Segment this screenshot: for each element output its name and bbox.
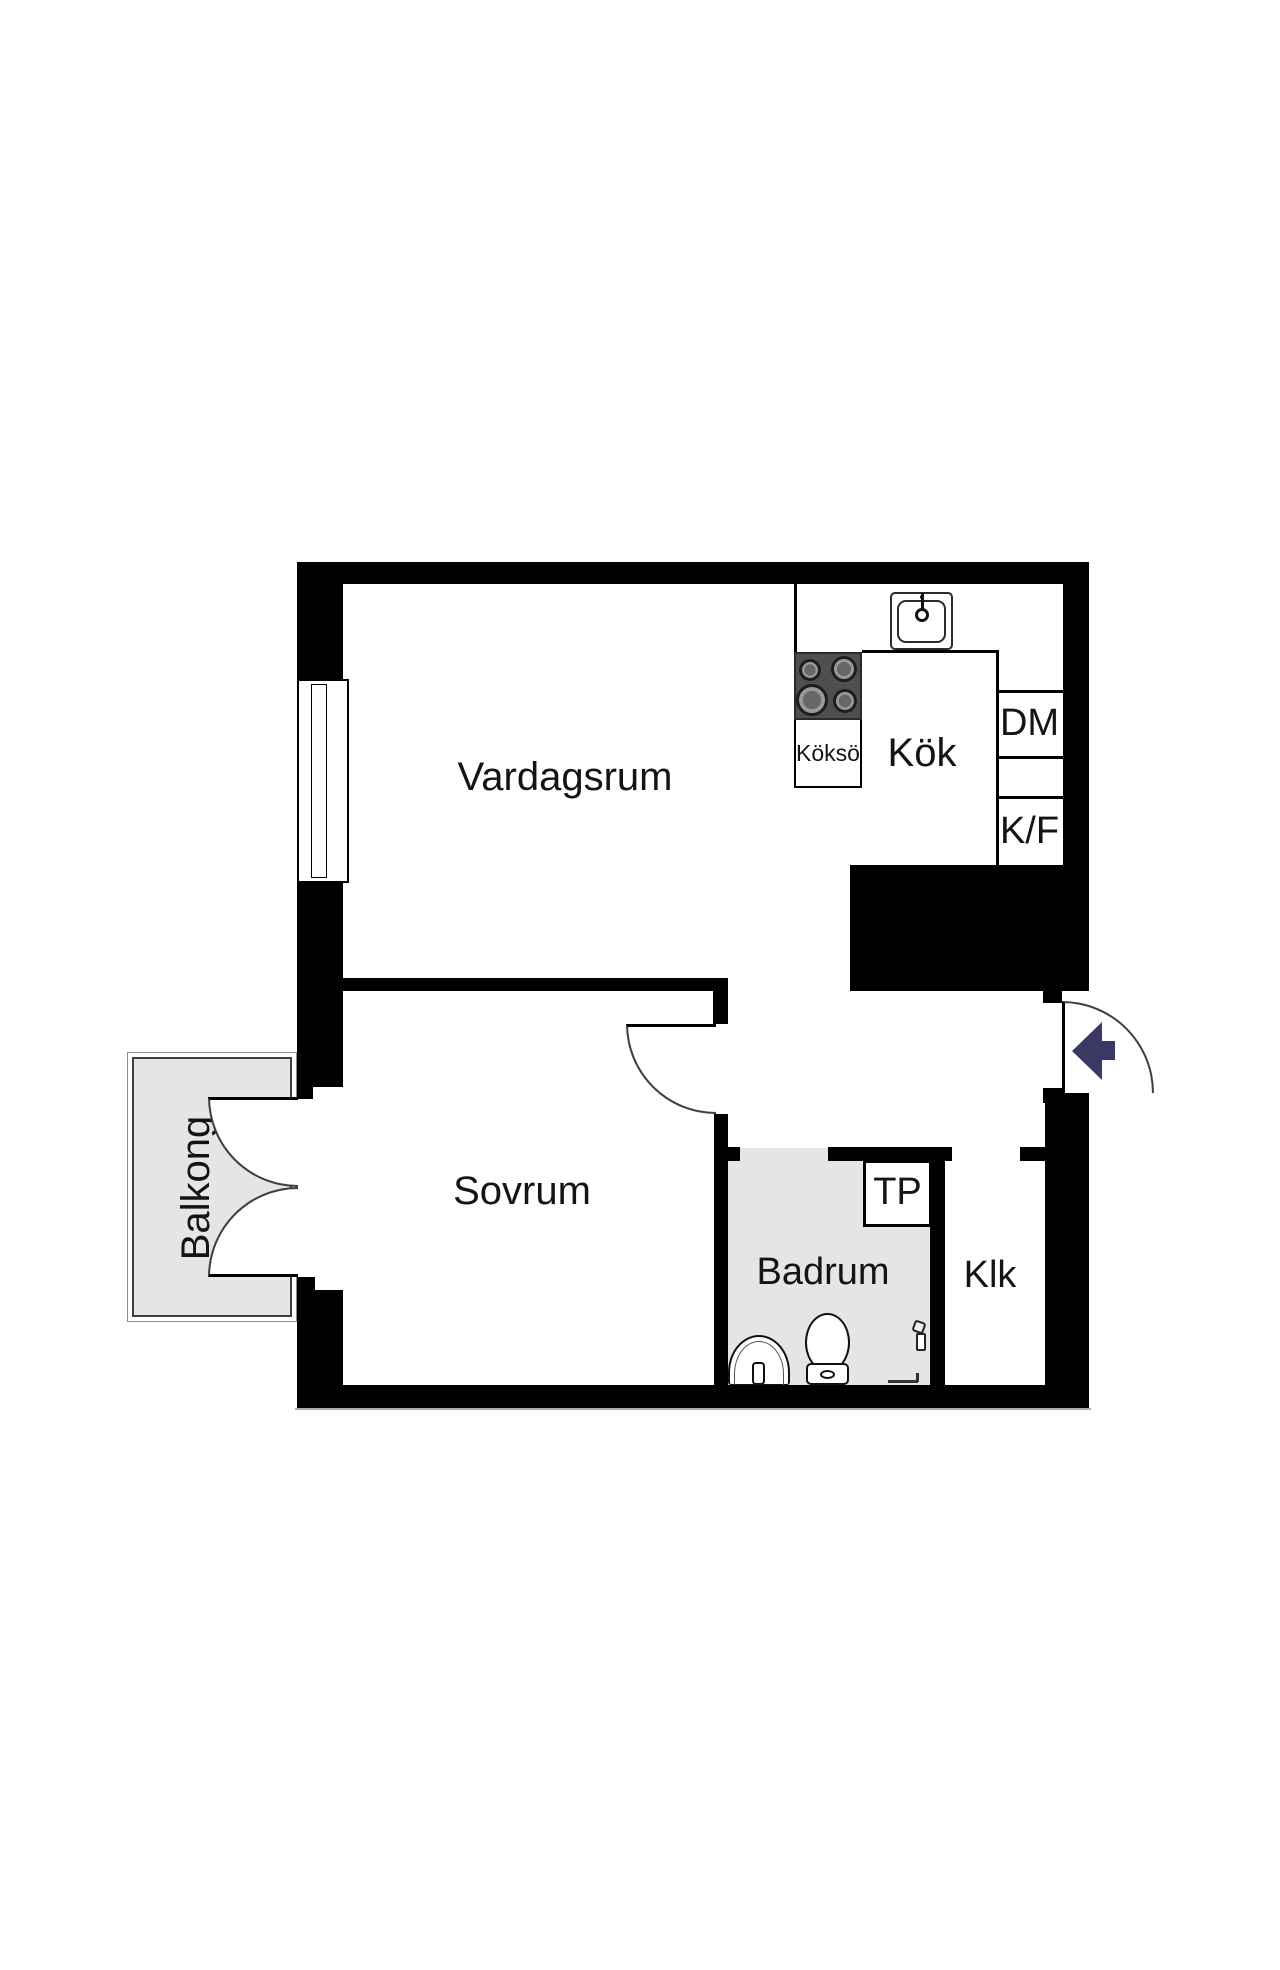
baseline-shadow	[295, 1408, 1091, 1410]
label-vardagsrum: Vardagsrum	[415, 755, 715, 799]
wall-closet-stub	[1020, 1147, 1045, 1161]
floor-plan: Balkong	[0, 0, 1280, 1970]
label-kokso: Köksö	[796, 739, 860, 767]
shower-floor-line	[888, 1380, 918, 1383]
label-klk: Klk	[938, 1253, 1042, 1297]
label-badrum: Badrum	[723, 1250, 923, 1294]
wall-left-lower	[297, 1290, 343, 1386]
room-hall	[728, 991, 1062, 1147]
wall-balcony-jamb-top	[297, 1087, 313, 1099]
toilet-button	[820, 1370, 835, 1379]
wall-bottom	[297, 1385, 1089, 1408]
label-dm: DM	[996, 703, 1063, 743]
label-kf: K/F	[996, 811, 1063, 851]
tap-body	[916, 1333, 926, 1351]
wall-left-upper	[297, 562, 343, 679]
entry-arrow-icon	[1070, 1020, 1117, 1082]
wall-balcony-jamb-bottom	[297, 1277, 315, 1291]
window-pane	[311, 684, 327, 878]
label-tp: TP	[863, 1160, 932, 1224]
wall-bathroom-stub-left	[727, 1147, 740, 1161]
label-kok: Kök	[862, 731, 982, 775]
shower-floor-tick	[916, 1373, 919, 1382]
wall-bedroom-top	[343, 978, 713, 991]
wall-kitchen-mass	[850, 865, 1089, 991]
label-sovrum: Sovrum	[372, 1169, 672, 1213]
wall-bedroom-door-jamb	[713, 978, 728, 1024]
washbasin-tap	[752, 1362, 765, 1385]
wall-top	[297, 562, 1089, 584]
wall-left-mid	[297, 883, 343, 1087]
wall-right-upper	[1063, 562, 1089, 865]
